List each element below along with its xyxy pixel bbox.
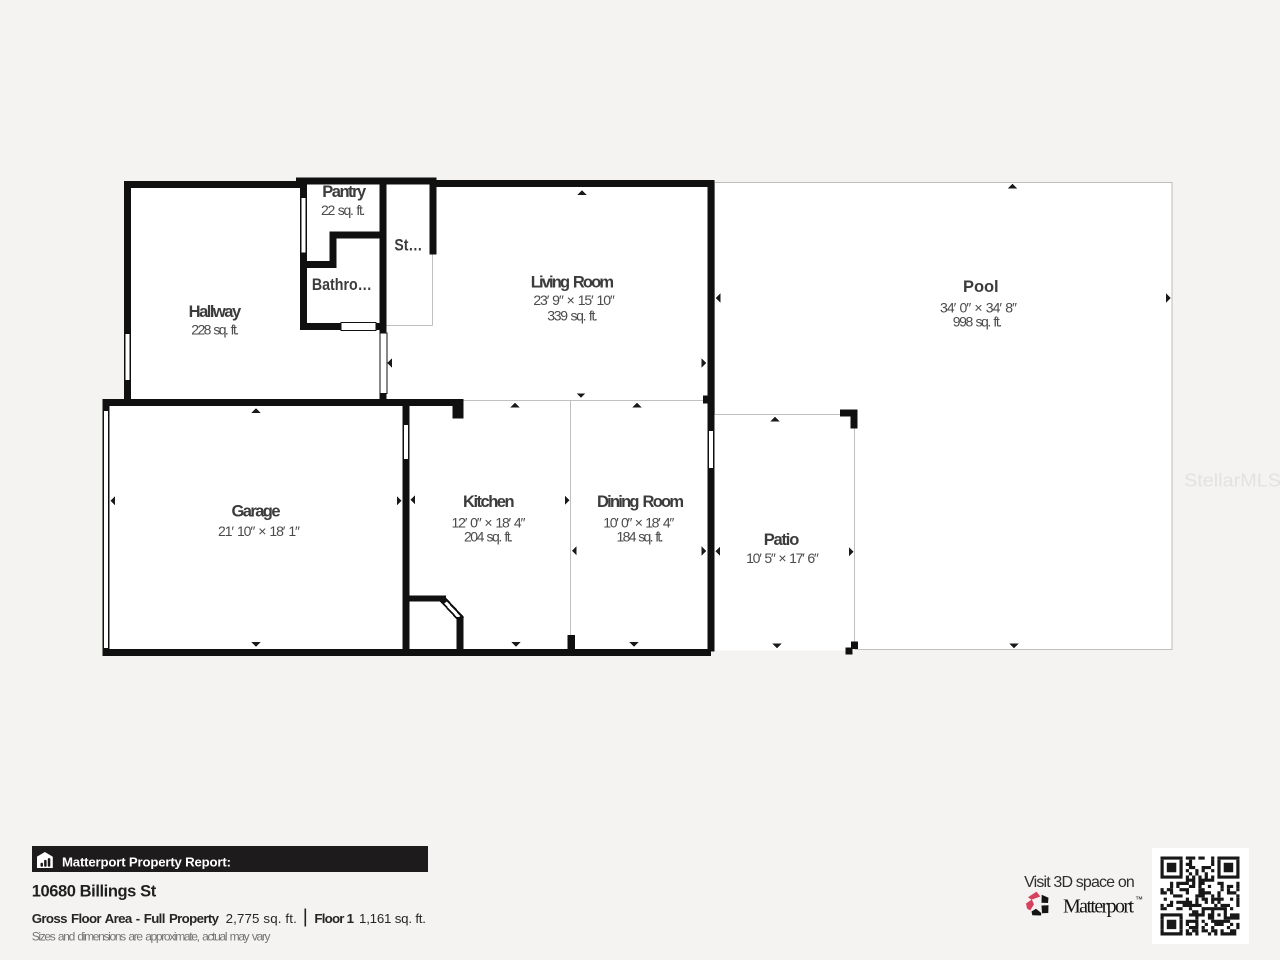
svg-text:Matterport: Matterport <box>1063 896 1134 918</box>
svg-text:1,161 sq. ft.: 1,161 sq. ft. <box>359 911 426 926</box>
svg-text:Floor 1: Floor 1 <box>314 911 354 926</box>
svg-text:Sizes and dimensions are appro: Sizes and dimensions are approximate, ac… <box>32 930 271 944</box>
svg-text:10680 Billings St: 10680 Billings St <box>32 883 157 901</box>
svg-text:Gross Floor Area - Full Proper: Gross Floor Area - Full Property <box>32 911 220 926</box>
svg-text:2,775 sq. ft.: 2,775 sq. ft. <box>226 911 297 926</box>
svg-text:Matterport Property Report:: Matterport Property Report: <box>62 854 231 869</box>
svg-text:Visit 3D space on: Visit 3D space on <box>1024 874 1135 891</box>
svg-text:™: ™ <box>1135 895 1143 904</box>
